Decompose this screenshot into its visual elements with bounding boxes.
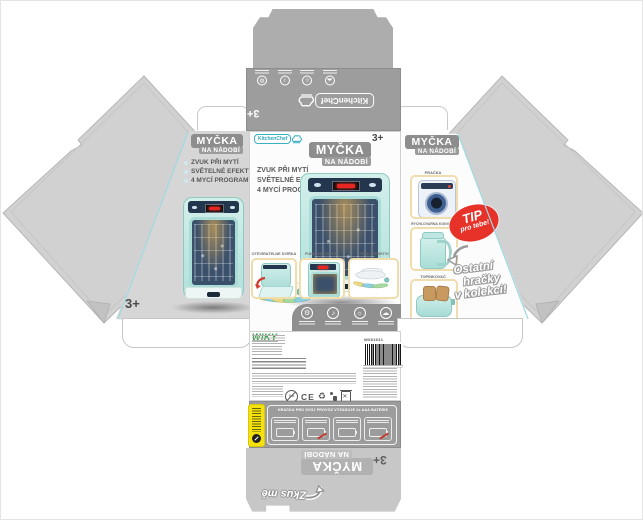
title-line1: MYČKA: [191, 134, 243, 148]
display-dishwasher-image: [301, 260, 343, 297]
age-badge-left: 3+: [125, 296, 140, 311]
feature-item: SVĚTELNÉ EFEKTY: [184, 167, 248, 176]
fine-print-block: [252, 358, 306, 371]
front-icon-bar: ⚙ ♪ ☼ ☁: [292, 304, 401, 332]
title-line2: NA NÁDOBÍ: [301, 450, 352, 459]
fine-print-block: [363, 368, 397, 399]
front-card-openable-door: [251, 258, 297, 299]
feature-bullet-list: ZVUK PŘI MYTÍ SVĚTELNÉ EFEKTY 4 MYCÍ PRO…: [184, 158, 248, 185]
try-me-text: Zkus mě: [261, 487, 306, 501]
ce-mark-icon: CE: [301, 392, 315, 402]
fine-print-block: [252, 386, 283, 397]
barcode-digits: [363, 365, 403, 368]
battery-step-2: [302, 417, 330, 441]
front-card-working-display: [299, 258, 345, 299]
title-line2: NA NÁDOBÍ: [322, 157, 371, 166]
icon-caption-lines: [378, 321, 394, 325]
sound-icon: ♪: [280, 76, 290, 86]
feature-item: ZVUK PŘI MYTÍ: [184, 158, 248, 167]
gear-icon: ⚙: [257, 76, 267, 86]
front-card-label: FUNKČNÍ DISPLEJ: [299, 252, 345, 256]
front-card-accessories: [348, 258, 399, 299]
right-dust-tab: [395, 106, 448, 130]
icon-caption-lines: [300, 70, 314, 74]
collection-card-washing-machine: [410, 175, 458, 219]
dishwasher-control-panel: [188, 201, 238, 213]
left-wing-tip-fold: [87, 301, 110, 323]
age-badge-front: 3+: [372, 133, 383, 144]
fine-print-block: [252, 335, 285, 344]
dishwasher-product-image-left: [183, 197, 244, 307]
title-line1: MYČKA: [309, 142, 371, 158]
battery-note: HRAČKA PRO SVŮJ PROVOZ VYŽADUJE 2x AAA B…: [271, 408, 395, 412]
brand-logo-text: KitchenChef: [254, 134, 291, 144]
product-title-left: MYČKA NA NÁDOBÍ: [191, 134, 243, 154]
right-wing-tip-fold: [536, 301, 559, 323]
title-line2: NA NÁDOBÍ: [415, 148, 459, 155]
sound-icon: ♪: [327, 307, 339, 319]
battery-step-3: [333, 417, 361, 441]
dishwasher-logo-plate: [207, 292, 220, 297]
right-bottom-tuck-flap: [397, 318, 523, 348]
sound-icon-group: ♪: [275, 70, 295, 86]
front-card-label: PŘÍSLUŠENSTVÍ: [348, 252, 399, 256]
packaging-dieline: ☁ ☼ ♪ ⚙ KitchenChef 3+ MYČKA NA NÁDOBÍ Z…: [0, 0, 643, 520]
product-title-bottom-flap: MYČKA NA NÁDOBÍ: [301, 450, 373, 475]
barcode: [363, 342, 403, 367]
age-badge-top: 3+: [247, 107, 260, 119]
sound-icon-group: ♪: [322, 307, 344, 332]
tidyman-icon: [329, 392, 338, 402]
icon-caption-lines: [278, 70, 292, 74]
dishwasher-display: [205, 204, 224, 213]
recycle-icon: ♻: [318, 392, 326, 401]
screwdriver-tag: [248, 404, 265, 447]
steam-icon-group: ☁: [375, 307, 397, 332]
title-line1: MYČKA: [301, 458, 373, 475]
left-bottom-tuck-flap: [122, 318, 252, 348]
feature-item: 4 MYCÍ PROGRAMY: [184, 176, 248, 185]
washing-machine-image: [418, 180, 456, 218]
steam-icon: ☁: [325, 76, 335, 86]
accessories-image: [350, 260, 397, 297]
brand-logo-text: KitchenChef: [315, 93, 374, 108]
product-title-front: MYČKA NA NÁDOBÍ: [309, 142, 371, 166]
battery-step-4: [364, 417, 392, 441]
light-icon-group: ☼: [349, 307, 371, 332]
left-dust-tab: [197, 106, 250, 130]
try-me-arrow-icon: [303, 482, 326, 504]
steam-icon: ☁: [380, 307, 392, 319]
brand-logo-top: KitchenChef: [297, 93, 374, 108]
gear-icon-group: ⚙: [252, 70, 272, 86]
chef-hat-icon: [297, 94, 315, 108]
screwdriver-icon: [252, 434, 261, 443]
dishwasher-door-window: [189, 217, 238, 289]
top-tuck-flap: [253, 9, 393, 68]
red-arrow-icon: [254, 276, 268, 290]
icon-caption-lines: [255, 70, 269, 74]
gear-icon-group: ⚙: [296, 307, 318, 332]
icon-caption-lines: [352, 321, 368, 325]
dishwasher-display: [332, 181, 359, 191]
product-title-right: MYČKA NA NÁDOBÍ: [405, 135, 459, 155]
brand-logo-front: KitchenChef: [254, 134, 303, 144]
top-flap-icon-row: ☁ ☼ ♪ ⚙: [252, 70, 340, 86]
fine-print-block: [252, 346, 282, 355]
light-icon-group: ☼: [297, 70, 317, 86]
dishwasher-control-panel: [308, 178, 382, 192]
age-badge-bottom-flap: 3+: [373, 453, 387, 467]
light-icon: ☼: [302, 76, 312, 86]
chef-hat-icon: [291, 135, 303, 144]
front-card-label: OTEVÍRATELNÉ DVÍŘKA: [251, 252, 297, 256]
title-line1: MYČKA: [405, 135, 459, 149]
icon-caption-lines: [299, 321, 315, 325]
icon-caption-lines: [323, 70, 337, 74]
title-line2: NA NÁDOBÍ: [199, 147, 243, 154]
battery-step-1: [271, 417, 299, 441]
fine-print-block: [252, 373, 356, 384]
light-icon: ☼: [354, 307, 366, 319]
open-dishwasher-image: [253, 260, 295, 297]
steam-icon-group: ☁: [320, 70, 340, 86]
icon-caption-lines: [325, 321, 341, 325]
gear-icon: ⚙: [301, 307, 313, 319]
